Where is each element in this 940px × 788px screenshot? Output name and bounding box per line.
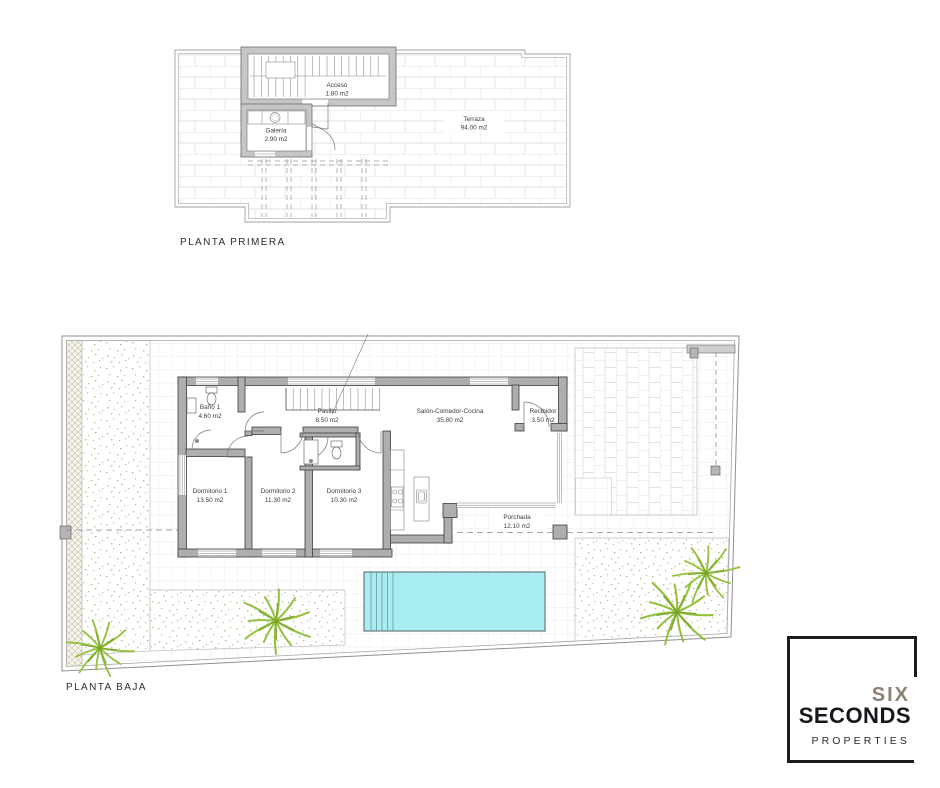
swimming-pool [364, 572, 545, 631]
left-hatched-strip [67, 341, 83, 667]
logo-word-seconds: SECONDS [799, 705, 911, 727]
planta-primera-plan: Acceso 1.80 m2 Galería 2.90 m2 Terraza 9… [175, 47, 575, 248]
terraza-room-label: Terraza [463, 116, 485, 123]
acceso-room-area: 1.80 m2 [325, 91, 349, 98]
pasillo-room-label: Pasillo [318, 408, 337, 415]
floor-plan-page: Acceso 1.80 m2 Galería 2.90 m2 Terraza 9… [0, 0, 940, 788]
right-garden-gravel [575, 538, 729, 648]
gate-post-left [60, 526, 71, 539]
porchada-room-label: Porchada [503, 514, 531, 521]
logo-word-properties: PROPERTIES [812, 736, 911, 747]
dormitorio1-room-area: 13.50 m2 [197, 497, 224, 504]
six-seconds-properties-logo: SIX SECONDS PROPERTIES [787, 636, 914, 763]
fence-post-top [690, 348, 698, 358]
salon-room-area: 35.80 m2 [437, 417, 464, 424]
brick-notch-tiled [576, 478, 612, 515]
porchada-room-area: 12.10 m2 [504, 523, 531, 530]
planta-baja-plan: Baño 1 4.60 m2 Pasillo 8.50 m2 Salón-Com… [60, 334, 746, 693]
recibidor-room-label: Recibidor [530, 408, 558, 415]
pasillo-room-area: 8.50 m2 [315, 417, 339, 424]
galeria-room-label: Galería [266, 128, 287, 135]
recibidor-room-area: 3.50 m2 [531, 417, 555, 424]
acceso-room-label: Acceso [327, 82, 348, 89]
planta-baja-caption: PLANTA BAJA [66, 682, 147, 693]
pool-water [364, 572, 545, 631]
stair-landing [266, 62, 295, 78]
bano1-room-label: Baño 1 [200, 404, 221, 411]
left-garden-gravel [82, 341, 150, 656]
bottom-left-garden-gravel [150, 590, 345, 651]
planta-primera-caption: PLANTA PRIMERA [180, 237, 286, 248]
galeria-room-area: 2.90 m2 [264, 136, 288, 143]
dormitorio3-room-area: 10.30 m2 [331, 497, 358, 504]
salon-room-label: Salón-Comedor-Cocina [417, 408, 484, 415]
dormitorio2-room-label: Dormitorio 2 [261, 488, 296, 495]
fence-post-mid [711, 466, 720, 475]
logo-word-six: SIX [872, 685, 910, 705]
bano1-room-area: 4.60 m2 [198, 413, 222, 420]
terraza-room-area: 94.00 m2 [461, 125, 488, 132]
dormitorio3-room-label: Dormitorio 3 [327, 488, 362, 495]
dormitorio2-room-area: 11.30 m2 [265, 497, 292, 504]
logo-frame-right-segment [914, 636, 917, 677]
dormitorio1-room-label: Dormitorio 1 [193, 488, 228, 495]
